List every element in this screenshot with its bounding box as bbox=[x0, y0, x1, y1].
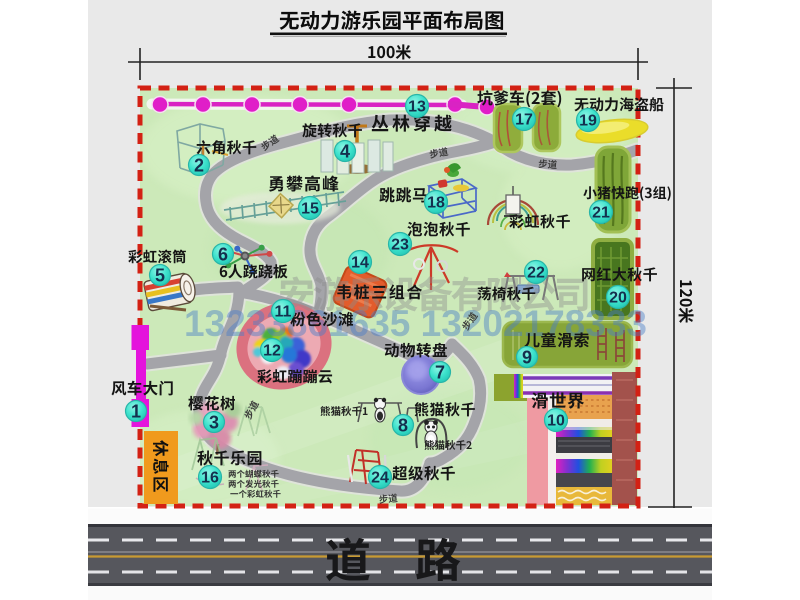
svg-text:7: 7 bbox=[435, 362, 445, 382]
svg-text:20: 20 bbox=[609, 290, 627, 307]
svg-text:18: 18 bbox=[427, 195, 445, 212]
svg-text:6: 6 bbox=[218, 244, 228, 264]
svg-text:1: 1 bbox=[131, 401, 141, 421]
svg-text:2: 2 bbox=[194, 155, 204, 175]
svg-text:17: 17 bbox=[515, 112, 533, 129]
svg-text:23: 23 bbox=[391, 237, 409, 254]
svg-text:12: 12 bbox=[263, 343, 281, 360]
svg-text:19: 19 bbox=[579, 113, 597, 130]
svg-text:21: 21 bbox=[592, 205, 610, 222]
svg-text:24: 24 bbox=[371, 470, 389, 487]
svg-text:15: 15 bbox=[301, 201, 319, 218]
svg-text:5: 5 bbox=[155, 265, 165, 285]
svg-text:22: 22 bbox=[527, 265, 545, 282]
svg-text:16: 16 bbox=[201, 470, 219, 487]
svg-text:9: 9 bbox=[522, 347, 532, 367]
svg-text:11: 11 bbox=[275, 304, 292, 321]
svg-text:10: 10 bbox=[547, 413, 565, 430]
svg-text:4: 4 bbox=[340, 141, 350, 161]
svg-text:3: 3 bbox=[209, 412, 219, 432]
svg-text:13: 13 bbox=[408, 99, 426, 116]
svg-text:8: 8 bbox=[398, 415, 408, 435]
svg-text:14: 14 bbox=[351, 255, 369, 272]
